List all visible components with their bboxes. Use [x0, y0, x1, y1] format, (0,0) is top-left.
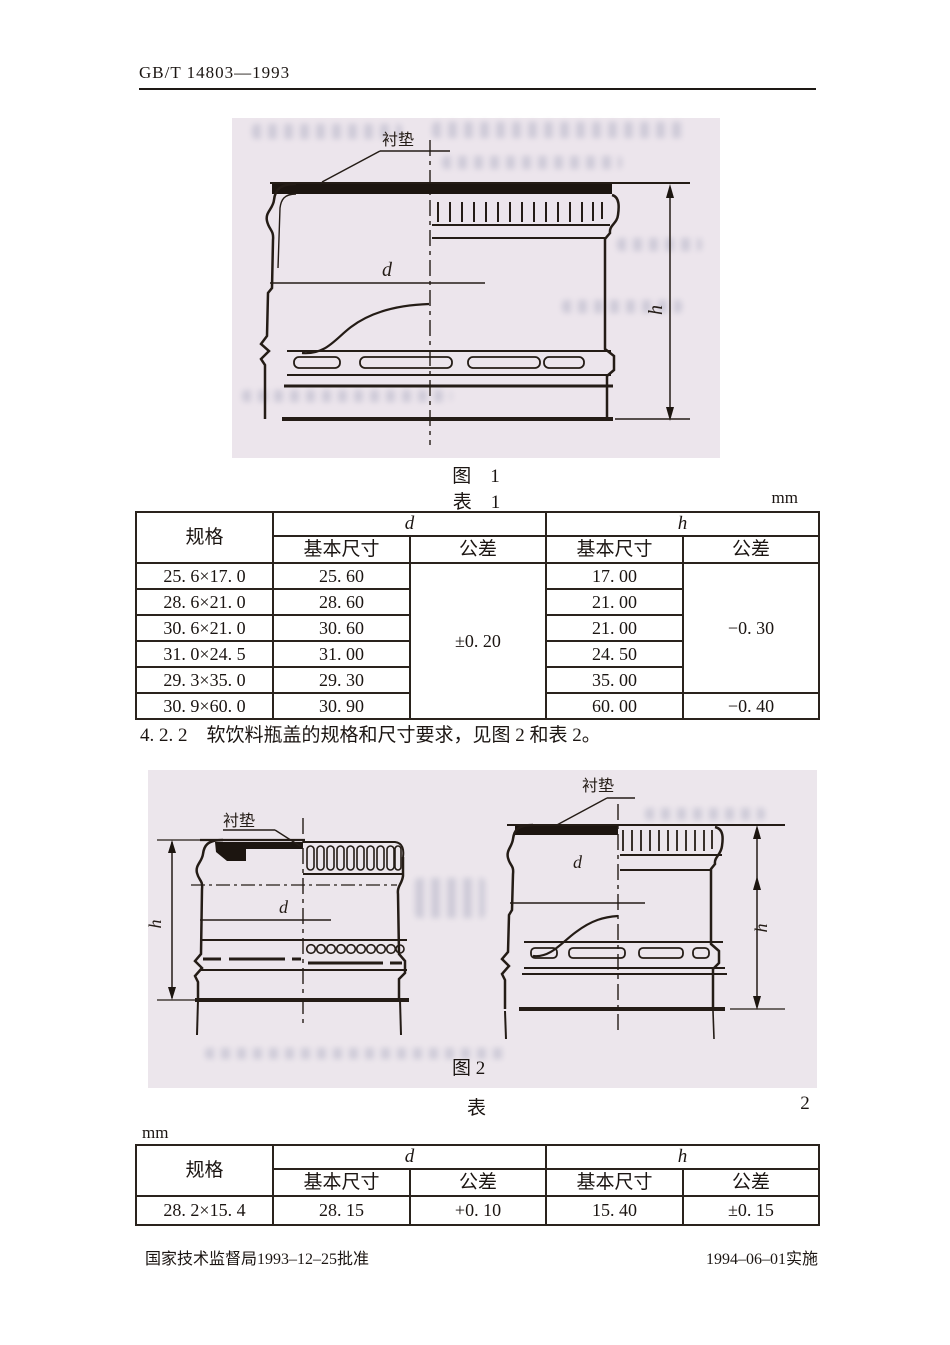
- skirt-line: [713, 1011, 714, 1039]
- perf-hole: [327, 945, 336, 954]
- knurl-ticks: [623, 830, 712, 851]
- cell-h-basic: 15. 40: [546, 1196, 683, 1225]
- perf-hole: [357, 945, 366, 954]
- table2-unit: mm: [142, 1123, 168, 1143]
- knurl-bump: [317, 846, 324, 870]
- cell-spec: 30. 6×21. 0: [136, 615, 273, 641]
- cell-h-tolerance: ±0. 15: [683, 1196, 819, 1225]
- table2-caption-number: 2: [793, 1093, 817, 1115]
- vent-slot: [468, 357, 540, 368]
- d-dim-label: d: [382, 259, 393, 281]
- perf-hole: [317, 945, 326, 954]
- knurl-bump: [395, 846, 401, 870]
- col-header-tolerance: 公差: [683, 536, 819, 563]
- cell-h-basic: 17. 00: [546, 563, 683, 589]
- knurl-bump: [327, 846, 334, 870]
- footer-implementation: 1994–06–01实施: [706, 1245, 818, 1269]
- vent-slot: [544, 357, 584, 368]
- knurl-bump: [337, 846, 344, 870]
- cell-h-tolerance: −0. 40: [683, 693, 819, 719]
- col-header-tolerance: 公差: [683, 1169, 819, 1196]
- knurl-bump: [377, 846, 384, 870]
- col-header-tolerance: 公差: [410, 536, 546, 563]
- gasket-section: [515, 826, 618, 835]
- right-wall: [398, 857, 405, 998]
- cell-h-basic: 60. 00: [546, 693, 683, 719]
- figure2-caption: 图 2: [452, 1053, 522, 1080]
- vent-slot: [294, 357, 340, 368]
- perf-hole: [387, 945, 396, 954]
- col-header-tolerance: 公差: [410, 1169, 546, 1196]
- section-4-2-2: 4. 2. 2 软饮料瓶盖的规格和尺寸要求，见图 2 和表 2。: [140, 720, 840, 747]
- perf-hole: [347, 945, 356, 954]
- perf-hole: [337, 945, 346, 954]
- d-dim-label: d: [279, 897, 289, 917]
- perf-hole: [307, 945, 316, 954]
- table1: 规格 d h 基本尺寸 公差 基本尺寸 公差 25. 6×17. 0 25. 6…: [135, 511, 820, 720]
- arrowhead: [168, 840, 176, 853]
- leader-line: [555, 798, 635, 826]
- cell-spec: 30. 9×60. 0: [136, 693, 273, 719]
- header-rule: [139, 88, 816, 90]
- knurl-top: [303, 842, 403, 857]
- figure2-drawing: h d: [145, 758, 820, 1088]
- col-header-basic: 基本尺寸: [546, 536, 683, 563]
- table-row: 规格 d h: [136, 512, 819, 536]
- cell-h-basic: 21. 00: [546, 615, 683, 641]
- knurl-bump: [357, 846, 364, 870]
- col-header-basic: 基本尺寸: [546, 1169, 683, 1196]
- cell-d-basic: 29. 30: [273, 667, 410, 693]
- liner-curve: [302, 304, 429, 353]
- table-row: 25. 6×17. 0 25. 60 ±0. 20 17. 00 −0. 30: [136, 563, 819, 589]
- cell-h-tolerance: −0. 30: [683, 563, 819, 693]
- cell-d-basic: 28. 15: [273, 1196, 410, 1225]
- left-wall: [502, 825, 533, 1009]
- cell-d-basic: 25. 60: [273, 563, 410, 589]
- col-header-d: d: [273, 512, 546, 536]
- arrowhead: [753, 876, 761, 890]
- knurl-bump: [387, 846, 394, 870]
- figure1-scan: d h 衬垫: [232, 118, 720, 458]
- col-header-basic: 基本尺寸: [273, 1169, 410, 1196]
- table1-unit: mm: [135, 488, 798, 508]
- cell-h-basic: 21. 00: [546, 589, 683, 615]
- d-dim-label: d: [573, 852, 583, 872]
- cell-d-tolerance: ±0. 20: [410, 563, 546, 719]
- gasket-section: [215, 842, 303, 861]
- knurl-bump: [347, 846, 354, 870]
- knurl-ticks: [438, 202, 602, 222]
- footer-approval: 国家技术监督局1993–12–25批准: [145, 1245, 369, 1269]
- col-header-d: d: [273, 1145, 546, 1169]
- skirt-line: [505, 1011, 506, 1039]
- table2: 规格 d h 基本尺寸 公差 基本尺寸 公差 28. 2×15. 4 28. 1…: [135, 1144, 820, 1226]
- arrowhead: [753, 996, 761, 1010]
- cell-spec: 25. 6×17. 0: [136, 563, 273, 589]
- cell-d-basic: 30. 60: [273, 615, 410, 641]
- h-dim-label: h: [645, 305, 667, 315]
- perf-hole: [367, 945, 376, 954]
- col-header-h: h: [546, 1145, 819, 1169]
- col-header-basic: 基本尺寸: [273, 536, 410, 563]
- cell-h-basic: 35. 00: [546, 667, 683, 693]
- cell-d-basic: 28. 60: [273, 589, 410, 615]
- figure1-caption: 图 1: [232, 461, 720, 488]
- cell-spec: 28. 6×21. 0: [136, 589, 273, 615]
- left-wall-inner: [278, 194, 296, 268]
- table-row: 28. 2×15. 4 28. 15 +0. 10 15. 40 ±0. 15: [136, 1196, 819, 1225]
- vent-slot: [693, 948, 709, 958]
- leader-line: [322, 151, 380, 182]
- cell-d-tolerance: +0. 10: [410, 1196, 546, 1225]
- figure2-scan: h d: [145, 758, 820, 1088]
- left-wall: [195, 840, 223, 998]
- skirt-line: [400, 1000, 401, 1035]
- knurl-bump: [307, 846, 314, 870]
- vent-slot: [569, 948, 625, 958]
- arrowhead: [753, 825, 761, 839]
- arrowhead: [168, 987, 176, 1000]
- cell-spec: 29. 3×35. 0: [136, 667, 273, 693]
- liner-label: 衬垫: [223, 812, 255, 830]
- cell-d-basic: 30. 90: [273, 693, 410, 719]
- table2-caption-label: 表: [135, 1093, 818, 1120]
- col-header-h: h: [546, 512, 819, 536]
- vent-slot: [639, 948, 683, 958]
- vent-slot: [360, 357, 452, 368]
- col-header-spec: 规格: [136, 1145, 273, 1196]
- arrowhead: [666, 184, 674, 198]
- left-wall: [261, 184, 296, 419]
- cell-d-basic: 31. 00: [273, 641, 410, 667]
- liner-label: 衬垫: [582, 777, 614, 795]
- gasket-section: [272, 184, 612, 194]
- liner-label: 衬垫: [382, 131, 414, 149]
- liner-curve: [533, 916, 618, 956]
- skirt-line: [197, 1000, 198, 1035]
- table-row: 规格 d h: [136, 1145, 819, 1169]
- cell-spec: 28. 2×15. 4: [136, 1196, 273, 1225]
- h-dim-label: h: [751, 924, 771, 933]
- perf-hole: [377, 945, 386, 954]
- cell-spec: 31. 0×24. 5: [136, 641, 273, 667]
- h-dim-label: h: [145, 920, 165, 929]
- col-header-spec: 规格: [136, 512, 273, 563]
- knurl-bump: [367, 846, 374, 870]
- document-page: GB/T 14803—1993 d: [0, 0, 950, 1345]
- figure1-drawing: d h 衬垫: [232, 118, 720, 458]
- cell-h-basic: 24. 50: [546, 641, 683, 667]
- doc-number: GB/T 14803—1993: [139, 63, 290, 83]
